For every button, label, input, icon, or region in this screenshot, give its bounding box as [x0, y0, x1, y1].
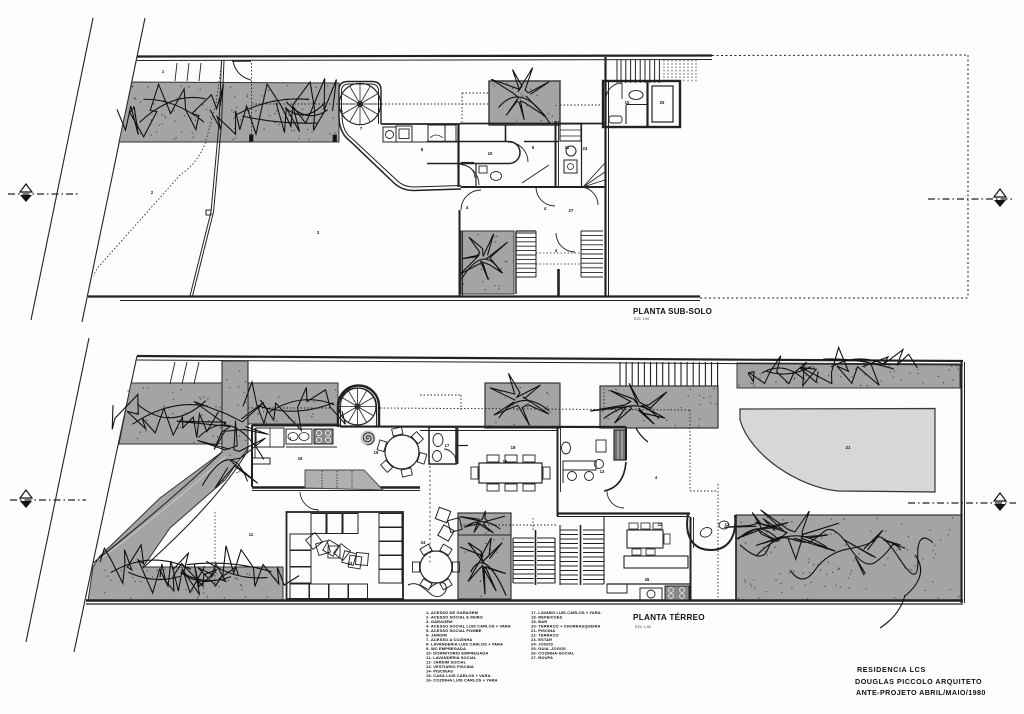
svg-text:25: 25 — [660, 100, 665, 105]
svg-text:18: 18 — [511, 445, 516, 450]
svg-text:PLANTA SUB-SOLO: PLANTA SUB-SOLO — [633, 307, 712, 316]
svg-text:23: 23 — [348, 561, 353, 566]
svg-text:22: 22 — [658, 522, 663, 527]
svg-text:21: 21 — [846, 445, 851, 450]
svg-text:16: 16 — [298, 456, 303, 461]
svg-text:ANTE-PROJETO ABRIL/MAIO/198: ANTE-PROJETO ABRIL/MAIO/1980 — [856, 688, 986, 697]
svg-text:RESIDENCIA LCS: RESIDENCIA LCS — [857, 665, 926, 674]
svg-text:15: 15 — [503, 459, 508, 464]
svg-text:ESC 1:50: ESC 1:50 — [635, 625, 651, 629]
svg-text:10: 10 — [488, 151, 493, 156]
svg-text:27- ROUPA: 27- ROUPA — [531, 655, 553, 660]
svg-text:27: 27 — [569, 208, 574, 213]
svg-text:DOUGLAS PICCOLO ARQUITETO: DOUGLAS PICCOLO ARQUITETO — [855, 677, 982, 686]
svg-text:11: 11 — [249, 532, 254, 537]
svg-text:24: 24 — [421, 540, 426, 545]
svg-text:24: 24 — [583, 146, 588, 151]
svg-text:17: 17 — [445, 443, 450, 448]
svg-text:16- COZINHA LUIS CARLOS + YAR: 16- COZINHA LUIS CARLOS + YARA — [426, 678, 498, 683]
svg-text:13: 13 — [600, 469, 605, 474]
svg-text:ESC 1:50: ESC 1:50 — [634, 317, 649, 321]
svg-text:26: 26 — [645, 577, 650, 582]
svg-text:19: 19 — [374, 450, 379, 455]
svg-text:PLANTA TÉRREO: PLANTA TÉRREO — [633, 612, 705, 622]
svg-text:15: 15 — [625, 100, 630, 105]
svg-text:12: 12 — [725, 522, 730, 527]
svg-text:11: 11 — [565, 145, 570, 150]
